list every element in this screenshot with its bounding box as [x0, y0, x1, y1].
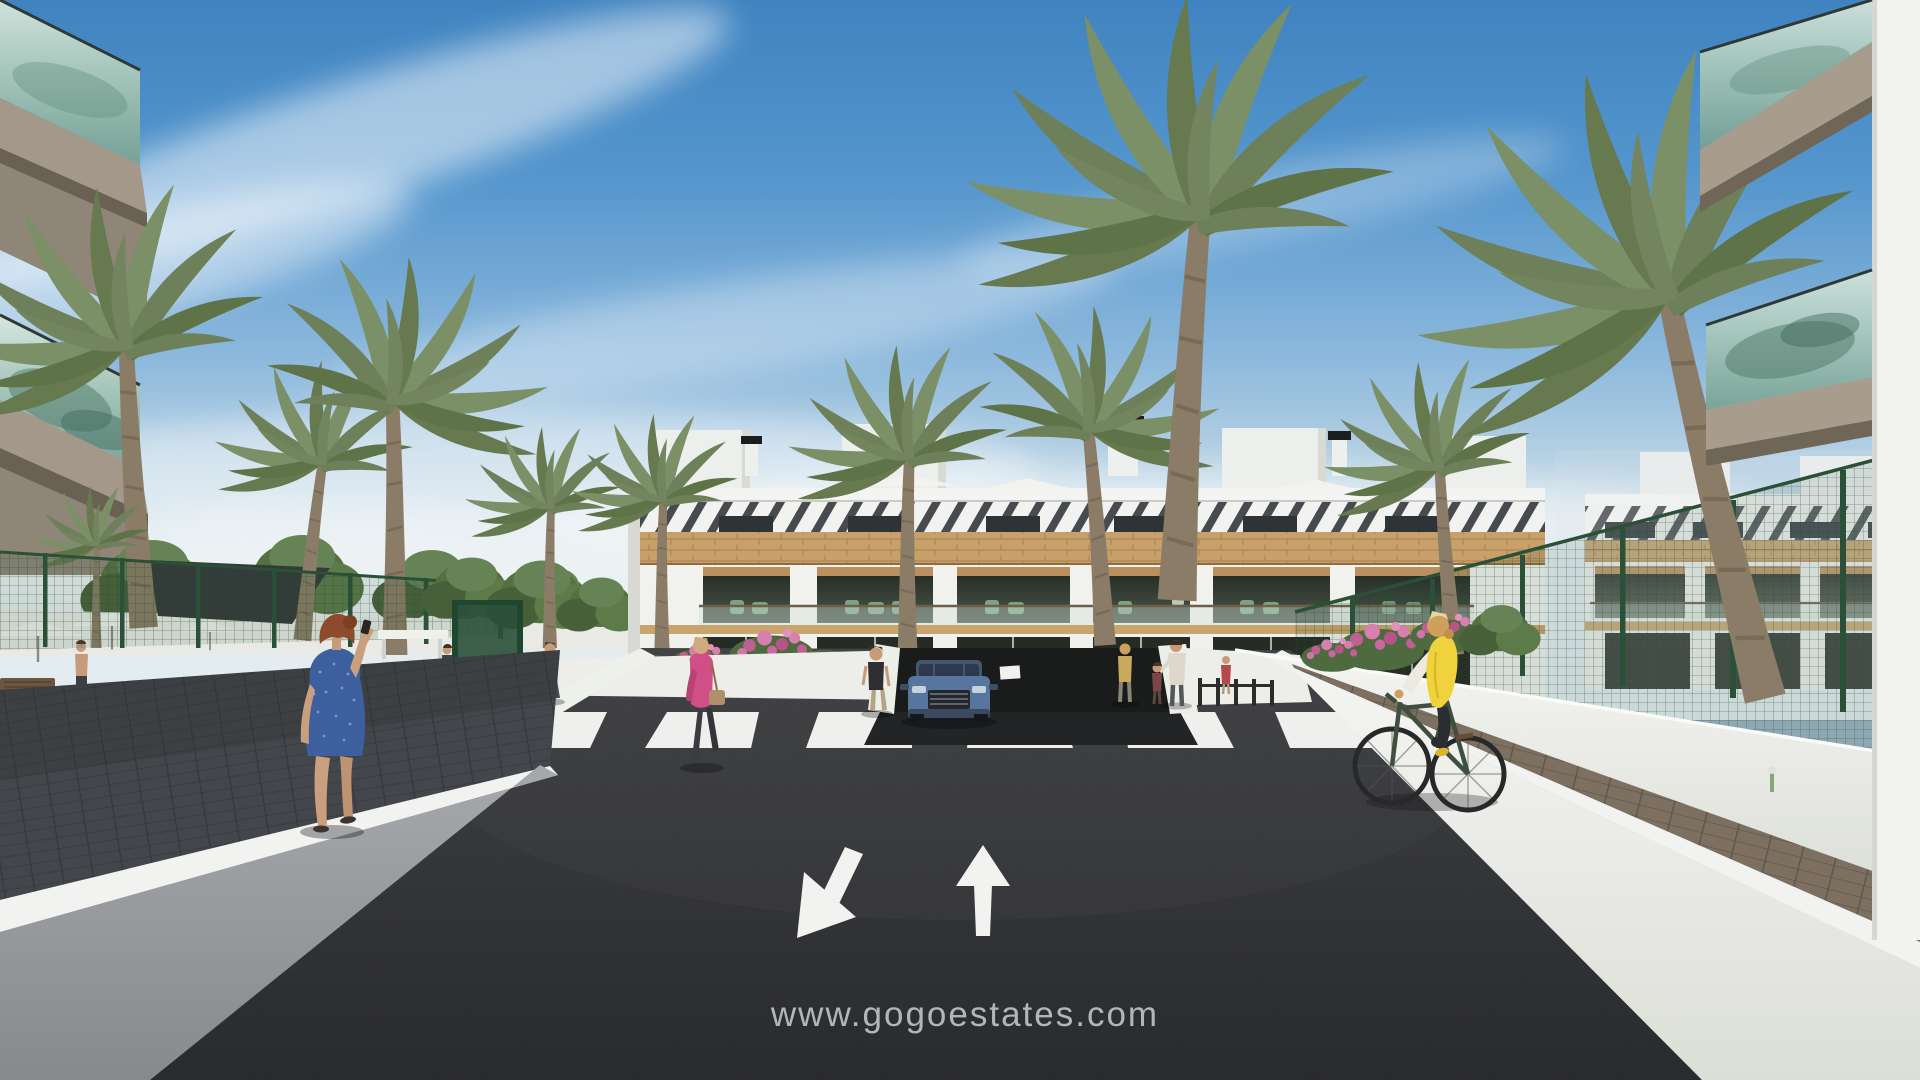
- pergola-roof: [378, 630, 448, 639]
- stone-band: [628, 532, 1545, 565]
- watermark: www.gogoestates.com: [770, 995, 1159, 1034]
- architectural-render: www.gogoestates.com: [0, 0, 1920, 1080]
